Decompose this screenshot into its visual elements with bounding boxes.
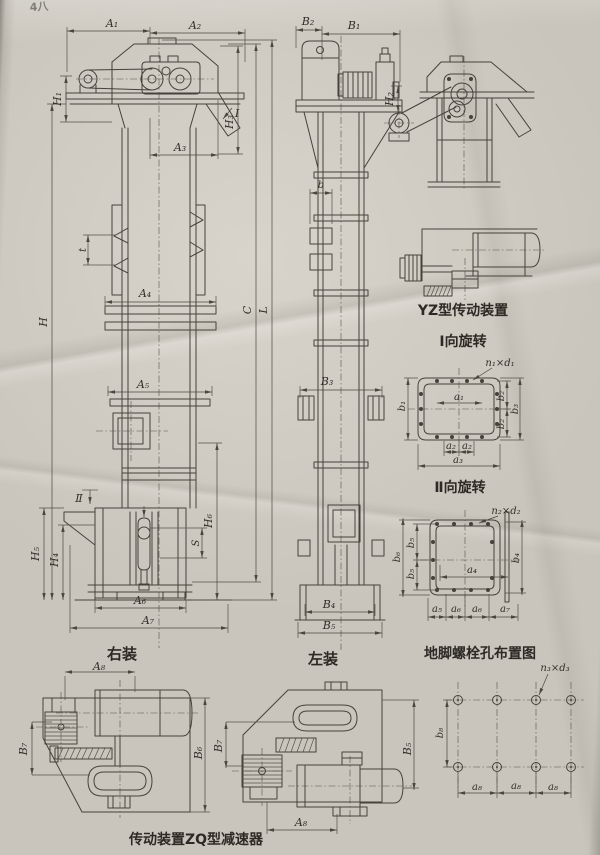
dim-label-h6: H₆ <box>202 513 215 529</box>
dim-label-a3-flange: a₃ <box>453 455 463 466</box>
dim-label-a8-1: a₈ <box>472 782 482 793</box>
bucket-elevator-drawing: A₁ A₂ A₃ H₁ H₃ C L H t A₄ A₅ S H₆ H₅ H₄ … <box>0 0 600 855</box>
dim-label-a4: A₄ <box>138 287 151 300</box>
callout-n2xd2: n₂×d₂ <box>491 506 520 517</box>
dim-label-b1-flange: b₁ <box>397 401 408 411</box>
dim-label-a6-right: a₆ <box>472 604 482 615</box>
dim-label-b2-side: B₂ <box>301 15 315 28</box>
dim-label-b5-zq2: B₅ <box>401 742 414 756</box>
callout-n3xd3: n₃×d₃ <box>540 663 569 674</box>
dim-label-b6: b₆ <box>392 552 403 562</box>
dim-label-b8: b₈ <box>435 728 446 738</box>
caption-zq-drive: 传动装置ZQ型减速器 <box>128 831 264 848</box>
callout-n1xd1: n₁×d₁ <box>485 358 514 369</box>
dim-label-b5-upper: b₅ <box>406 538 417 548</box>
dim-label-b4: B₄ <box>322 598 336 611</box>
dim-label-b1-side: B₁ <box>347 19 361 32</box>
dim-label-b3-flange: b₃ <box>510 404 521 414</box>
dim-label-a8-zq2: A₈ <box>294 816 308 829</box>
dim-label-b7-zq1: B₇ <box>17 742 30 756</box>
caption-left-install: 左装 <box>307 650 339 668</box>
dim-label-h5: H₅ <box>29 546 42 562</box>
dim-label-s: S <box>191 539 202 546</box>
dim-label-t: t <box>78 247 89 252</box>
dim-label-b5-side: B₅ <box>322 619 336 632</box>
side-elevation-view: B₂ B₁ H₂ b B₃ B₄ B₅ 左装 <box>295 15 402 668</box>
dim-label-c: C <box>241 305 254 314</box>
dim-label-a8-zq1: A₈ <box>92 660 106 673</box>
scanned-drawing-page: A₁ A₂ A₃ H₁ H₃ C L H t A₄ A₅ S H₆ H₅ H₄ … <box>0 0 600 855</box>
dim-label-b3: B₃ <box>320 375 334 388</box>
dim-label-a2-front: A₂ <box>188 19 201 32</box>
dim-label-b7-zq2: B₇ <box>212 739 225 753</box>
dim-label-h4: H₄ <box>48 553 61 568</box>
anchor-bolt-layout-view: n₃×d₃ b₈ a₈ a₈ a₈ <box>435 663 584 798</box>
dim-label-h2: H₂ <box>383 92 396 107</box>
page-header-fragment: 4八 <box>29 0 50 14</box>
flange-rotation-2-view: n₂×d₂ b₆ b₅ b₅ a₄ b₄ a₅ a₆ a₆ a₇ 地脚螺栓孔布置… <box>392 506 536 662</box>
dim-label-a6: A₆ <box>133 594 147 607</box>
dim-label-a7: A₇ <box>141 614 155 627</box>
dim-label-b-small: b <box>318 180 324 191</box>
caption-yz-drive: YZ型传动装置 <box>417 302 508 319</box>
section-marker-2: Ⅱ <box>74 492 83 505</box>
dim-label-a5: a₅ <box>432 604 442 615</box>
dim-label-a8-3: a₈ <box>548 782 558 793</box>
caption-rotation-1: Ⅰ向旋转 <box>439 333 486 350</box>
zq-drive-view-2: B₇ B₅ A₈ 传动装置ZQ型减速器 <box>128 682 419 848</box>
flange-rotation-1-view: n₁×d₁ a₁ b₁ b₂ b₂ b₃ a₂ a₂ a₃ Ⅱ向旋转 <box>397 358 524 496</box>
dim-label-b6-zq1: B₆ <box>192 746 205 760</box>
head-detail-view <box>384 56 534 190</box>
dim-label-h1: H₁ <box>51 92 64 107</box>
dim-label-a8-2: a₈ <box>511 781 521 792</box>
dim-label-a4: a₄ <box>467 565 477 576</box>
dim-label-a7-flange: a₇ <box>500 604 510 615</box>
dim-label-a6-left: a₆ <box>451 604 461 615</box>
yz-drive-view: YZ型传动装置 Ⅰ向旋转 <box>400 229 546 350</box>
dim-label-a3-front: A₃ <box>173 141 186 154</box>
dim-label-a5: A₅ <box>136 378 150 391</box>
zq-drive-view-1: A₈ B₇ B₆ <box>17 660 210 818</box>
dim-label-b4-flange: b₄ <box>511 553 522 563</box>
dim-label-a1-flange: a₁ <box>454 392 464 403</box>
caption-right-install: 右装 <box>107 645 138 663</box>
dim-label-a1-front: A₁ <box>105 17 118 30</box>
caption-anchor-layout: 地脚螺栓孔布置图 <box>424 645 536 662</box>
dim-label-h: H <box>37 317 50 328</box>
dim-label-l: L <box>257 306 270 314</box>
section-marker-1: I <box>234 107 240 120</box>
caption-rotation-2: Ⅱ向旋转 <box>434 479 485 496</box>
dim-label-b5-lower: b₅ <box>406 569 417 579</box>
